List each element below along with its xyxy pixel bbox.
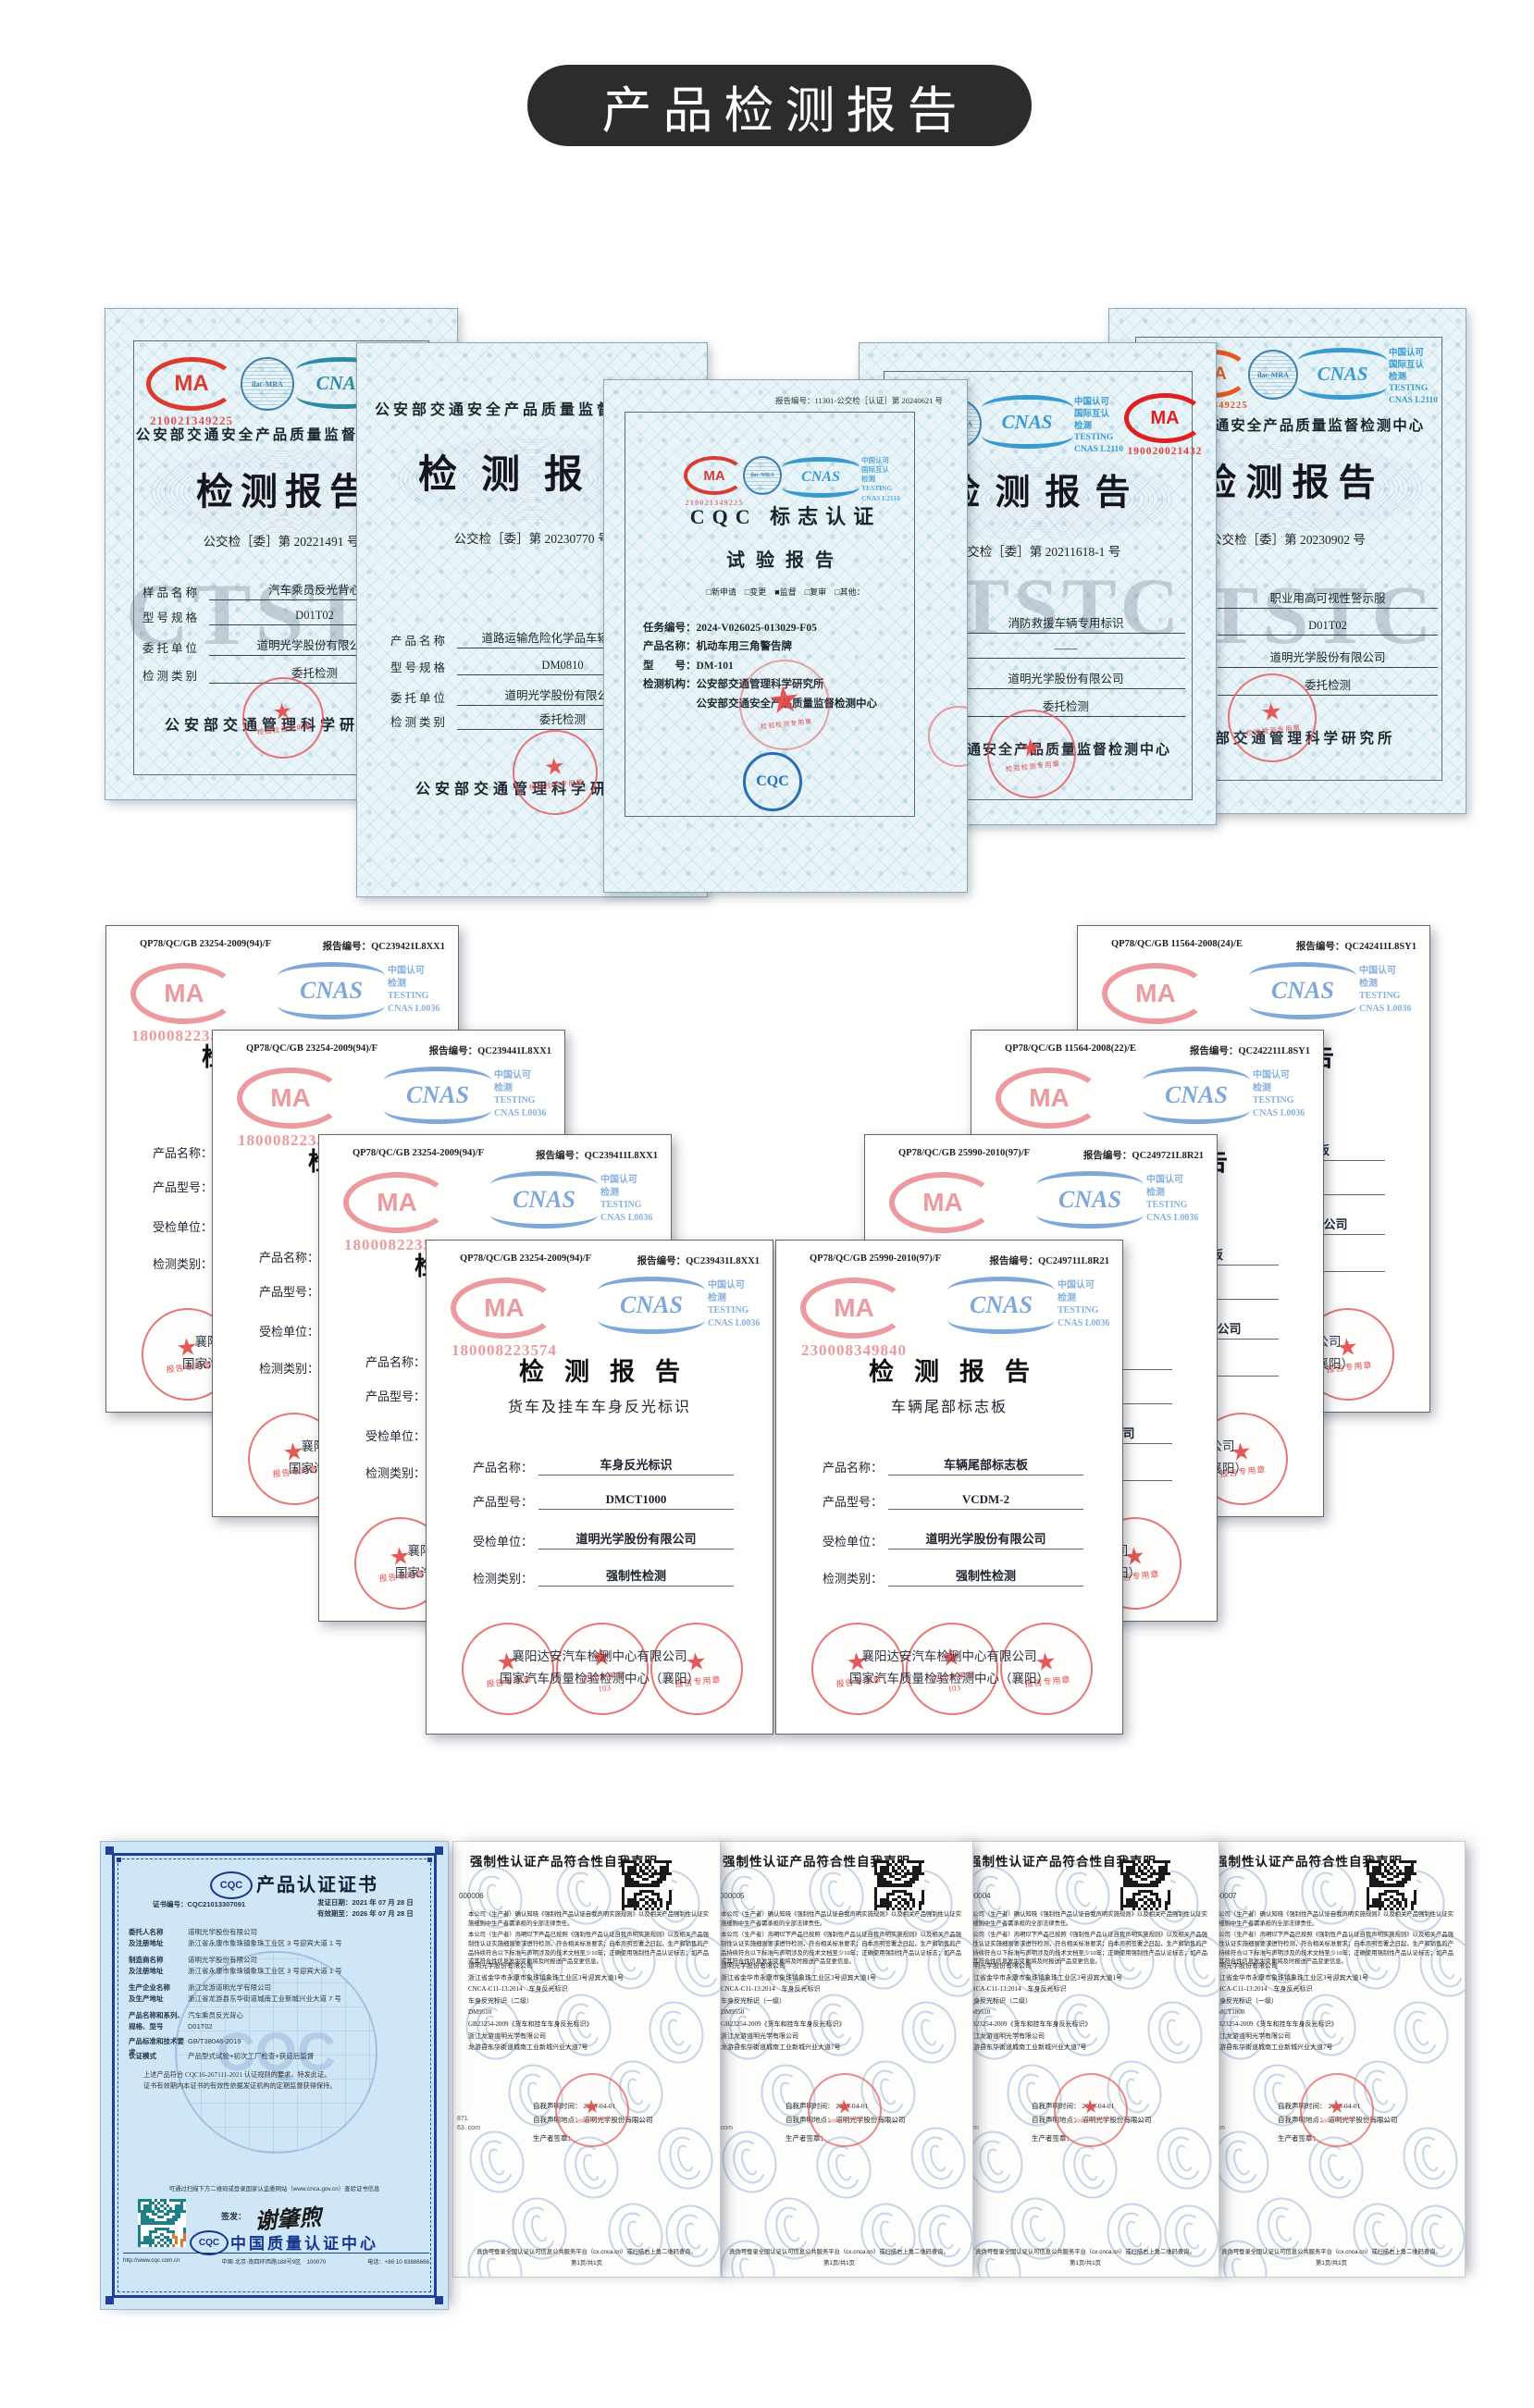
- declaration-fields: 道明光学股份有限公司 浙江省金华市永康市象珠镇象珠工业区3号迎宾大道1号 CNC…: [468, 1960, 624, 2054]
- cma-mark: MA: [1124, 393, 1206, 443]
- corner-ornament: [427, 1858, 432, 1862]
- field-value: 浙江龙游道明光学有限公司 浙江省龙游县东华街道城南工业新城兴业大道 7 号: [188, 1982, 427, 2005]
- certificate-number: 证书编号：CQC21013307091: [153, 1899, 245, 1909]
- testing-organization: 襄阳达安汽车检测中心有限公司: [427, 1646, 773, 1664]
- field-label: 检测类别：: [365, 1463, 426, 1481]
- cnas-accreditation-text: 中国认可 国际互认 检测 TESTING CNAS L2110: [1389, 348, 1438, 407]
- cnas-logo: CNAS: [1041, 1178, 1139, 1222]
- ilac-mra-logo: ilac-MRA: [1248, 350, 1298, 400]
- report-number: 报告编号：QC239431L8XX1: [637, 1253, 760, 1267]
- field-label: 生产企业名称 及生产地址: [129, 1982, 188, 2005]
- cma-mark: MA: [889, 1172, 996, 1233]
- cqc-mark-test-report: 报告编号：11301-公交检［认证］第 20240621 号 MA 210021…: [603, 379, 968, 893]
- cnas-logo: CNAS: [952, 1283, 1050, 1327]
- field-label: 型号规格: [390, 658, 448, 675]
- certificate-footer: http://www.cqc.com.cn 中国·北京·南四环西路188号9区 …: [123, 2253, 429, 2266]
- star-icon: ★: [835, 2097, 854, 2118]
- testing-organization: 襄阳达安汽车检测中心有限公司: [776, 1646, 1122, 1664]
- field-label: 产品型号：: [365, 1387, 426, 1404]
- cma-mark: MA: [1102, 963, 1209, 1024]
- star-icon: ★: [583, 2097, 601, 2118]
- self-declaration-document: 强制性认证产品符合性自我声明 18000004 本公司（生产者）确认知晓《强制性…: [951, 1841, 1219, 2278]
- signer-label: 签发：: [221, 2210, 246, 2222]
- field-value: 职业用高可视性警示服: [1218, 588, 1438, 609]
- declaration-fields: 道明光学股份有限公司 浙江省金华市永康市象珠镇象珠工业区3号迎宾大道1号 CNC…: [1213, 1960, 1368, 2054]
- field-label: 产品型号：: [473, 1492, 533, 1510]
- cnas-accreditation-text: 中国认可 检测 TESTING CNAS L0036: [1146, 1174, 1198, 1224]
- cma-mark: MA: [237, 1068, 344, 1129]
- cut-text-fragment: 63. com: [457, 2125, 480, 2131]
- field-label: 产品型号：: [823, 1492, 883, 1510]
- field-value: D01T02: [1218, 619, 1438, 636]
- testing-organization: 国家汽车质量检验检测中心（襄阳）: [427, 1668, 773, 1686]
- cnas-logo: CNAS: [282, 969, 380, 1013]
- cnas-accreditation-text: 中国认可 检测 TESTING CNAS L0036: [494, 1069, 546, 1119]
- product-test-report-page: 产品检测报告 MA 210021349225 ilac-MRA CNAS 中国认…: [0, 0, 1534, 2408]
- corner-ornament: [117, 1858, 121, 1862]
- field-value: 车身反光标识: [538, 1455, 734, 1476]
- document-code: QP78/QC/GB 23254-2009(94)/F: [140, 939, 271, 949]
- corner-ornament: [105, 1846, 114, 1855]
- page-indicator: 第1页/共1页: [952, 2258, 1219, 2266]
- corner-ornament: [435, 2296, 443, 2304]
- field-label: 产品名称：: [365, 1352, 426, 1370]
- page-indicator: 第1页/共1页: [706, 2258, 972, 2266]
- stamp-digits: 8307730044612: [1321, 2116, 1355, 2125]
- stamp-label: 检验检测专用章: [528, 776, 584, 792]
- verification-hint: 真伪可登录全国认证认可信息公共服务平台（cx.cnca.cn）或扫描右上角二维码…: [1198, 2247, 1465, 2255]
- field-value: 强制性检测: [538, 1566, 734, 1587]
- ilac-mra-logo: ilac-MRA: [241, 357, 294, 411]
- field-label: 受检单位：: [365, 1426, 426, 1444]
- cma-logo: MA 210021349225: [146, 357, 237, 426]
- testing-organization: 国家汽车质量检验检测中心（襄阳）: [776, 1668, 1122, 1686]
- field-label: 认证模式: [129, 2051, 188, 2062]
- cma-logo: MA 210021349225: [684, 456, 745, 507]
- cqc-logo: CQC: [743, 752, 802, 811]
- cqc-logo: CQC: [190, 2230, 229, 2255]
- scan-hint: 可通过扫描下方二维码或登录国家认监委网站（www.cnca.gov.cn）查验证…: [101, 2184, 448, 2192]
- cnas-logo: CNAS: [1147, 1073, 1245, 1118]
- cqc-product-certificate: CQC CQC 产品认证证书 证书编号：CQC21013307091 发证日期：…: [100, 1841, 449, 2310]
- cut-text-fragment: 871: [457, 2116, 468, 2122]
- certification-body: 中国质量认证中心: [230, 2230, 378, 2254]
- declaration-fields: 道明光学股份有限公司 浙江省金华市永康市象珠镇象珠工业区3号迎宾大道1号 CNC…: [967, 1960, 1122, 2054]
- ccc-watermark-layer: [706, 1842, 972, 2277]
- field-value: 道明光学股份有限公司: [1218, 648, 1438, 668]
- report-number: 报告编号：QC239411L8XX1: [536, 1148, 658, 1162]
- cma-mark: MA: [451, 1278, 558, 1339]
- cma-number: 190020021432: [1124, 447, 1206, 458]
- ilac-mra-logo: ilac-MRA: [743, 456, 782, 495]
- field-label: 委托人名称 及注册地址: [129, 1927, 188, 1949]
- field-label: 受检单位：: [473, 1532, 533, 1550]
- document-code: QP78/QC/GB 11564-2008(24)/E: [1111, 939, 1243, 949]
- cqc-cert-title: CQC 标志认证: [604, 500, 967, 530]
- field-label: 委托单位: [142, 638, 200, 656]
- issue-date: 发证日期：2021 年 07 月 28 日: [317, 1897, 414, 1908]
- corner-ornament: [105, 2296, 114, 2304]
- declaration-paragraph: 本公司（生产者）确认知晓《强制性产品认证自我声明实施规则》以及相关产品强制性认证…: [1213, 1910, 1454, 1929]
- report-title: 检测报告: [776, 1352, 1122, 1388]
- report-type-checkboxes: □新申请 □变更 ■监督 □复审 □其他：: [604, 586, 967, 598]
- document-code: QP78/QC/GB 23254-2009(94)/F: [353, 1148, 484, 1158]
- verification-hint: 真伪可登录全国认证认可信息公共服务平台（cx.cnca.cn）或扫描右上角二维码…: [453, 2247, 720, 2255]
- cnas-logo: CNAS: [389, 1073, 487, 1118]
- field-label: 产品名称和系列、 规格、型号: [129, 2010, 188, 2032]
- declaration-number: 000006: [459, 1892, 484, 1900]
- field-value: DMCT1000: [538, 1492, 734, 1510]
- field-label: 检测类别：: [823, 1569, 883, 1587]
- cma-mark: MA: [996, 1068, 1103, 1129]
- qr-code: [622, 1860, 672, 1910]
- cma-logo: MA 230008349840: [800, 1278, 908, 1358]
- page-title: 产品检测报告: [527, 65, 1032, 146]
- star-icon: ★: [1259, 699, 1283, 725]
- verification-hint: 真伪可登录全国认证认可信息公共服务平台（cx.cnca.cn）或扫描右上角二维码…: [706, 2247, 972, 2255]
- self-declaration-document: 强制性认证产品符合性自我声明 000006 本公司（生产者）确认知晓《强制性产品…: [452, 1841, 721, 2278]
- verification-hint: 真伪可登录全国认证认可信息公共服务平台（cx.cnca.cn）或扫描右上角二维码…: [952, 2247, 1219, 2255]
- field-value: 强制性检测: [888, 1566, 1083, 1587]
- report-number: 报告编号：QC239421L8XX1: [323, 939, 445, 953]
- qr-code: [138, 2199, 186, 2247]
- declaration-paragraph: 本公司（生产者）确认知晓《强制性产品认证自我声明实施规则》以及相关产品强制性认证…: [967, 1910, 1207, 1929]
- field-label: 样品名称: [142, 583, 200, 600]
- cnas-logo: CNAS: [786, 462, 856, 493]
- field-value: 消防救援车辆专用标识: [946, 613, 1185, 634]
- report-number: 报告编号：QC242211L8SY1: [1190, 1043, 1310, 1057]
- field-label: 检测类别: [142, 666, 200, 684]
- field-label: 产品型号：: [153, 1178, 213, 1195]
- report-subtitle: 车辆尾部标志板: [776, 1394, 1122, 1416]
- report-number: 报告编号：QC249721L8R21: [1083, 1148, 1204, 1162]
- field-label: 产品名称: [390, 631, 448, 648]
- report-number: 报告编号：QC239441L8XX1: [429, 1043, 551, 1057]
- document-code: QP78/QC/GB 25990-2010(97)/F: [898, 1148, 1030, 1158]
- document-code: QP78/QC/GB 23254-2009(94)/F: [246, 1043, 377, 1054]
- cma-logo: MA 190020021432: [1124, 393, 1206, 458]
- field-value: ——: [946, 642, 1185, 659]
- cnas-accreditation-text: 中国认可 检测 TESTING CNAS L0036: [600, 1174, 652, 1224]
- field-label: 制造商名称 及注册地址: [129, 1955, 188, 1977]
- field-value: 道明光学股份有限公司 浙江省永康市象珠镇象珠工业区 3 号迎宾大道 1 号: [188, 1955, 427, 1977]
- cma-mark: MA: [684, 456, 745, 495]
- cnas-accreditation-text: 中国认可 检测 TESTING CNAS L0036: [1359, 965, 1411, 1015]
- certificate-statement: 上述产品符合 CQC16-267111-2021 认证规则的要求，特发此证。 证…: [143, 2069, 336, 2092]
- qr-code: [874, 1860, 924, 1910]
- report-title: 检测报告: [427, 1352, 773, 1388]
- declaration-paragraph: 本公司（生产者）确认知晓《强制性产品认证自我声明实施规则》以及相关产品强制性认证…: [721, 1910, 961, 1929]
- field-label: 受检单位：: [153, 1217, 213, 1235]
- test-report-certificate: QP78/QC/GB 23254-2009(94)/F 报告编号：QC23943…: [426, 1240, 773, 1735]
- field-label: 产品名称：: [473, 1458, 533, 1476]
- cqc-report-title: 试验报告: [604, 545, 967, 572]
- certificate-title: 产品认证证书: [256, 1870, 378, 1896]
- stamp-digits: 8307730044612: [576, 2116, 611, 2125]
- cnas-logo: CNAS: [602, 1283, 700, 1327]
- stamp-digits: 8307730044612: [829, 2116, 863, 2125]
- field-value: 道明光学股份有限公司 浙江省永康市象珠镇象珠工业区 3 号迎宾大道 1 号: [188, 1927, 427, 1949]
- field-label: 产品名称：: [823, 1458, 883, 1476]
- star-icon: ★: [543, 754, 566, 779]
- field-label: 检测类别：: [473, 1569, 533, 1587]
- official-stamp: ★ 检验检测专用章: [508, 725, 601, 819]
- ccc-watermark-layer: [453, 1842, 720, 2277]
- self-declaration-document: 强制性认证产品符合性自我声明 18000005 本公司（生产者）确认知晓《强制性…: [705, 1841, 973, 2278]
- cnas-accreditation-text: 中国认可 检测 TESTING CNAS L0036: [388, 965, 439, 1015]
- cma-mark: MA: [800, 1278, 908, 1339]
- page-indicator: 第1页/共1页: [1198, 2258, 1465, 2266]
- field-label: 产品名称：: [259, 1248, 319, 1266]
- document-code: QP78/QC/GB 23254-2009(94)/F: [460, 1253, 591, 1264]
- declaration-fields: 道明光学股份有限公司 浙江省金华市永康市象珠镇象珠工业区3号迎宾大道1号 CNC…: [721, 1960, 876, 2054]
- page-indicator: 第1页/共1页: [453, 2258, 720, 2266]
- star-icon: ★: [765, 680, 802, 721]
- cnas-logo: CNAS: [985, 401, 1069, 443]
- star-icon: ★: [1082, 2097, 1100, 2118]
- footer-url: http://www.cqc.com.cn: [123, 2257, 180, 2266]
- cnas-accreditation-text: 中国认可 国际互认 检测 TESTING CNAS L2110: [1074, 397, 1123, 456]
- field-value: 车辆尾部标志板: [888, 1455, 1083, 1476]
- report-number: 报告编号：QC242411L8SY1: [1296, 939, 1416, 953]
- star-icon: ★: [1328, 2097, 1346, 2118]
- corner-ornament: [435, 1846, 443, 1855]
- stamp-label: 检验检测专用章: [1245, 722, 1301, 738]
- field-label: 受检单位：: [259, 1322, 319, 1340]
- partial-stamp: [925, 703, 968, 771]
- field-label: 受检单位：: [823, 1532, 883, 1550]
- cnas-logo: CNAS: [1254, 969, 1352, 1013]
- field-label: 产品名称：: [153, 1143, 213, 1161]
- cma-mark: MA: [343, 1172, 451, 1233]
- field-value: VCDM-2: [888, 1492, 1083, 1510]
- cqc-logo: CQC: [210, 1871, 253, 1899]
- field-label: 型号规格: [142, 608, 200, 625]
- field-label: 检测类别: [390, 712, 448, 730]
- stamp-label: 检验检测专用章: [761, 716, 813, 731]
- field-value: 道明光学股份有限公司: [538, 1529, 734, 1550]
- cnas-accreditation-text: 中国认可 检测 TESTING CNAS L0036: [1058, 1279, 1109, 1329]
- field-value: 道明光学股份有限公司: [888, 1529, 1083, 1550]
- report-subtitle: 货车及挂车车身反光标识: [427, 1394, 773, 1416]
- cnas-logo: CNAS: [495, 1178, 593, 1222]
- self-declaration-document: 强制性认证产品符合性自我声明 18000007 本公司（生产者）确认知晓《强制性…: [1197, 1841, 1466, 2278]
- qr-code: [1367, 1860, 1416, 1910]
- cma-mark: MA: [146, 357, 237, 411]
- ccc-watermark-layer: [1198, 1842, 1465, 2277]
- field-value: 道明光学股份有限公司: [946, 669, 1185, 689]
- cnas-accreditation-text: 中国认可 检测 TESTING CNAS L0036: [708, 1279, 760, 1329]
- footer-address: 中国·北京·南四环西路188号9区 100070: [221, 2257, 326, 2266]
- field-label: 检测类别：: [259, 1359, 319, 1377]
- cma-mark: MA: [130, 963, 238, 1024]
- field-label: 检测类别：: [153, 1254, 213, 1272]
- cma-logo: MA 180008223574: [451, 1278, 558, 1358]
- test-report-certificate: QP78/QC/GB 25990-2010(97)/F 报告编号：QC24971…: [775, 1240, 1123, 1735]
- stamp-digits: 8307730044612: [1075, 2116, 1109, 2125]
- ccc-watermark-layer: [952, 1842, 1219, 2277]
- field-value: 汽车乘员反光背心 D01T02: [188, 2010, 427, 2032]
- valid-until-date: 有效期至：2026 年 07 月 28 日: [317, 1908, 414, 1919]
- field-value: 委托检测: [946, 697, 1185, 717]
- star-icon: ★: [271, 700, 293, 724]
- document-code: QP78/QC/GB 25990-2010(97)/F: [810, 1253, 941, 1264]
- field-value: 产品型式试验+初次工厂检查+获证后监督: [188, 2051, 427, 2062]
- qr-code: [1120, 1860, 1170, 1910]
- report-number: 报告编号：QC249711L8R21: [989, 1253, 1109, 1267]
- field-label: 委托单位: [390, 688, 448, 706]
- star-icon: ★: [1019, 735, 1043, 761]
- declaration-paragraph: 本公司（生产者）确认知晓《强制性产品认证自我声明实施规则》以及相关产品强制性认证…: [468, 1910, 709, 1929]
- cnas-accreditation-text: 中国认可 检测 TESTING CNAS L0036: [1253, 1069, 1305, 1119]
- report-number: 报告编号：11301-公交检［认证］第 20240621 号: [775, 395, 943, 406]
- footer-phone: 电话：+86 10 83886666: [367, 2257, 429, 2266]
- stamp-label: 检验检测专用章: [1005, 759, 1060, 774]
- document-code: QP78/QC/GB 11564-2008(22)/E: [1005, 1043, 1136, 1054]
- field-label: 产品型号：: [259, 1282, 319, 1300]
- cnas-logo: CNAS: [1302, 353, 1383, 394]
- cnas-accreditation-text: 中国认可 国际互认 检测 TESTING CNAS L2110: [861, 456, 900, 503]
- stamp-label: 检验检测专用章: [256, 722, 312, 737]
